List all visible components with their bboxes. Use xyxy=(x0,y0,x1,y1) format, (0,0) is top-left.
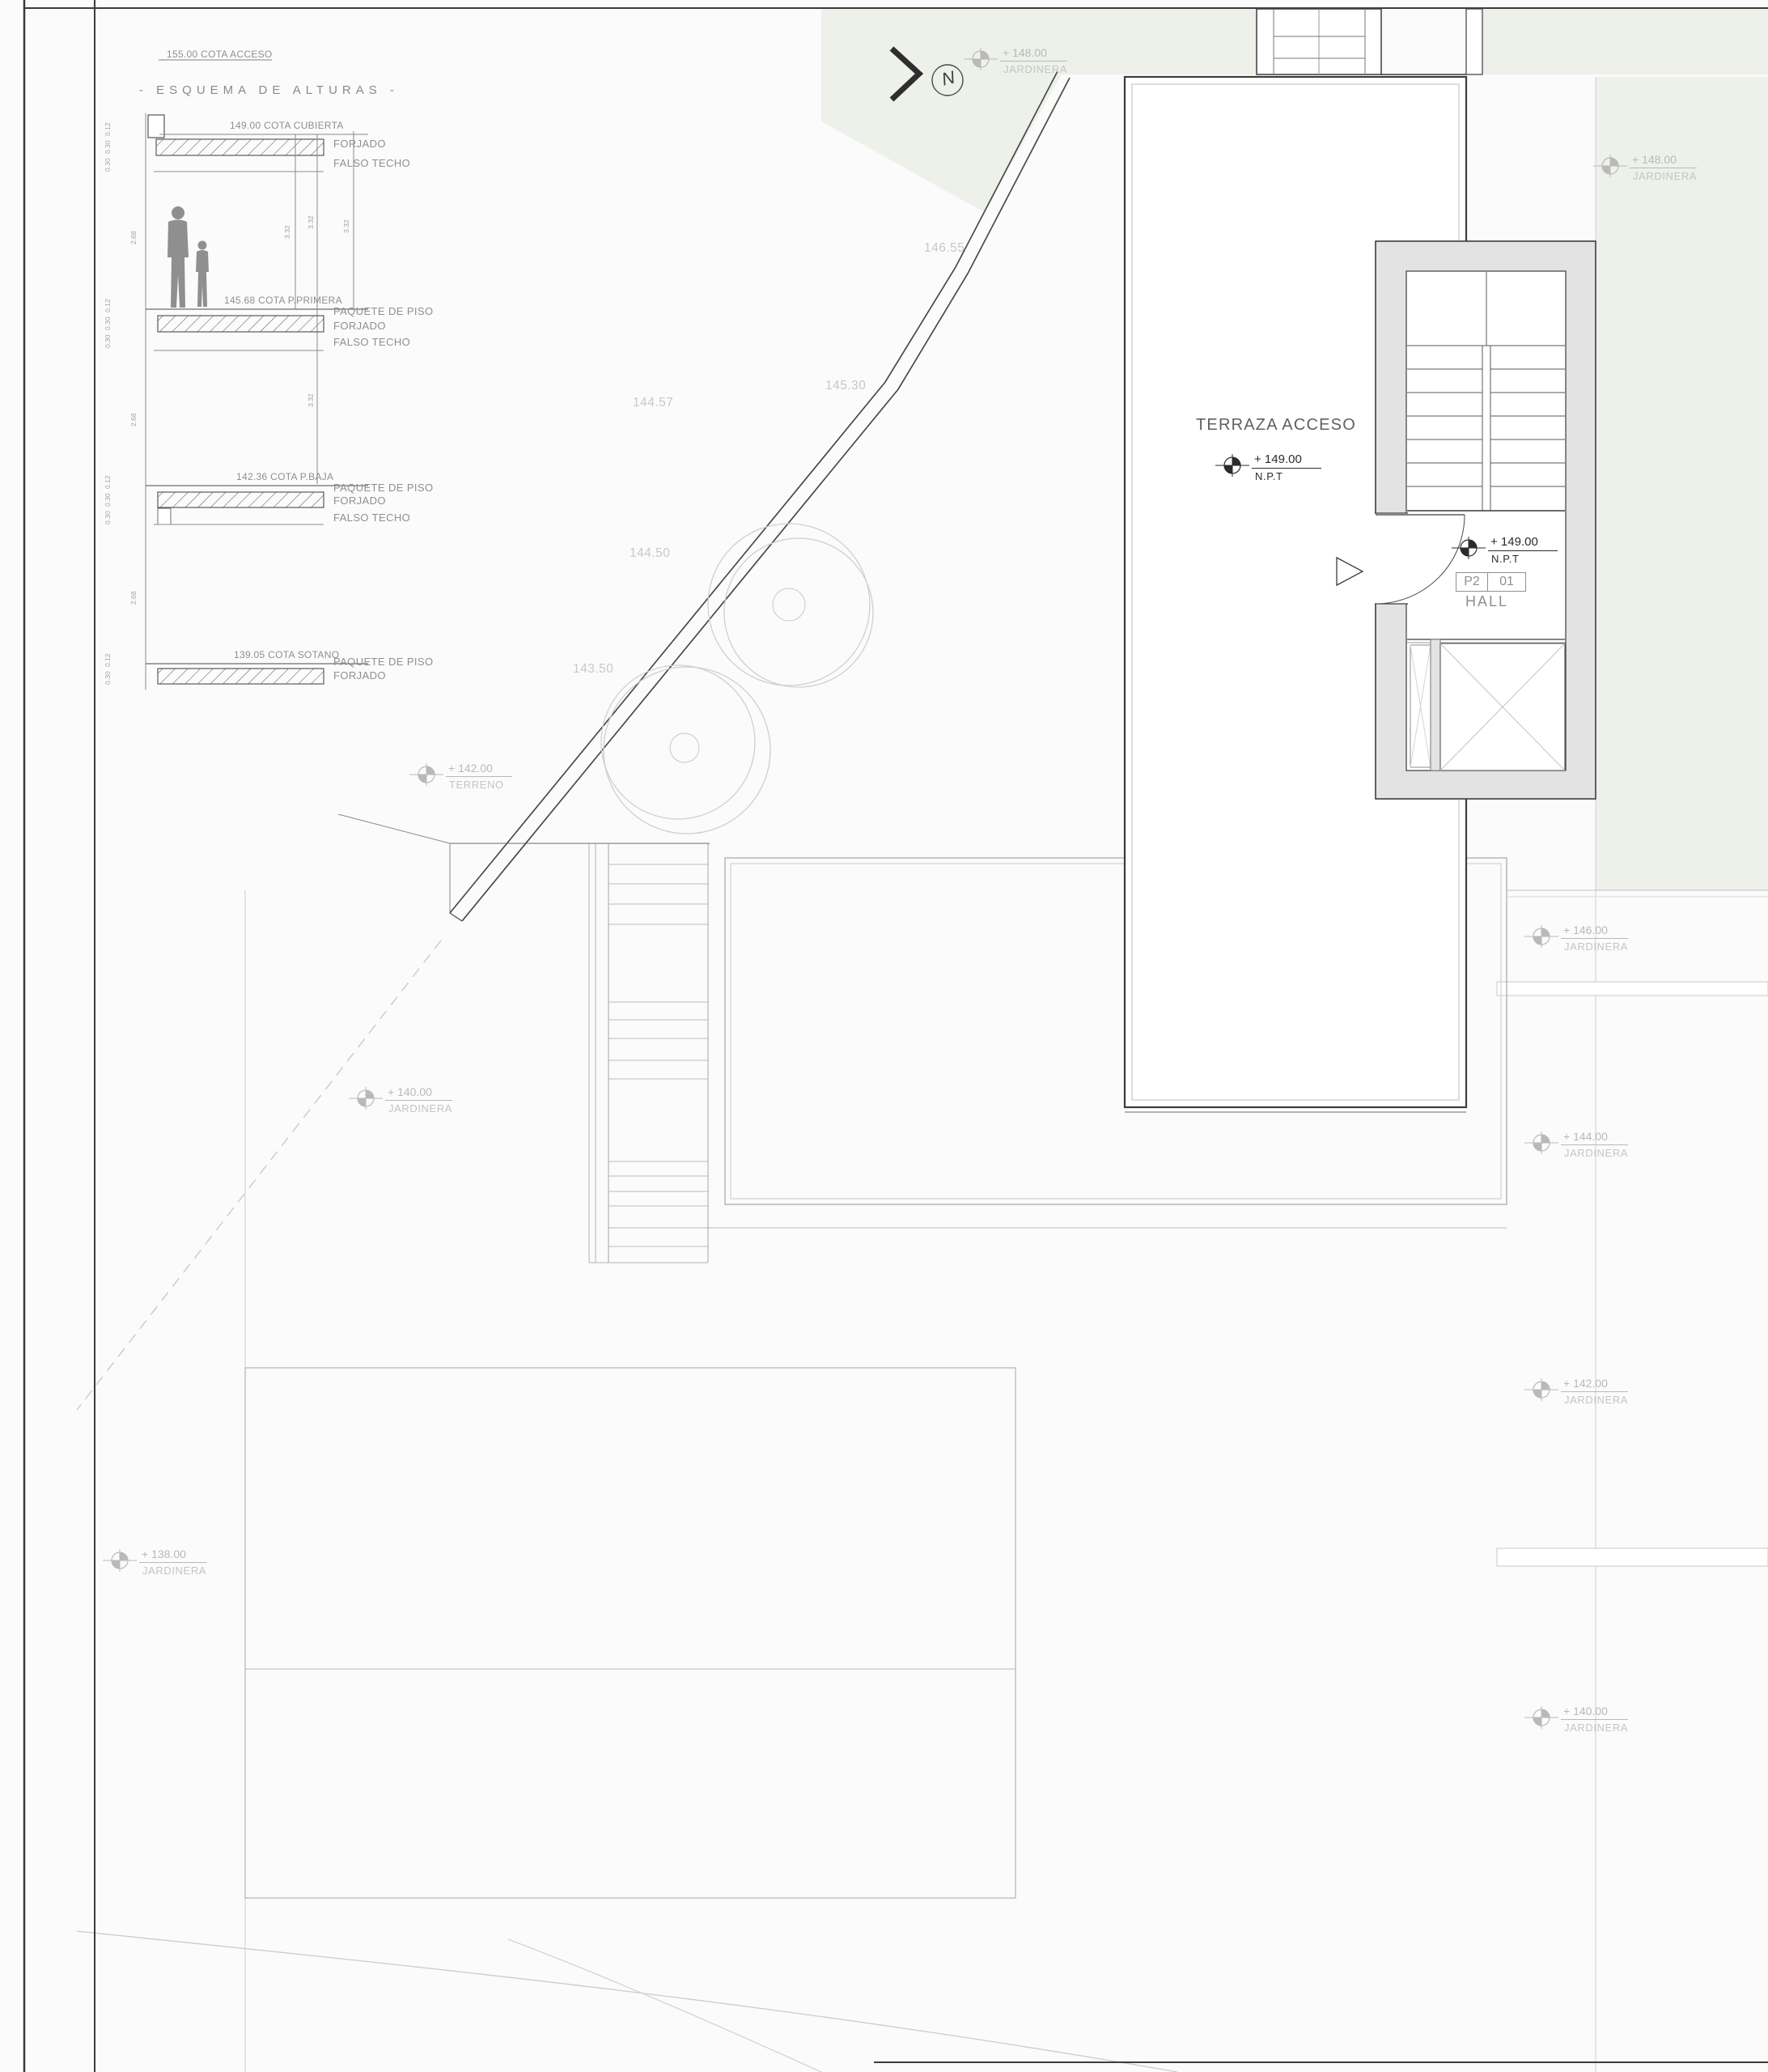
dim-t3-1: 0.30 xyxy=(104,158,112,172)
dim-t1-2: 0.12 xyxy=(104,299,112,312)
npt-value: + 149.00 xyxy=(1488,535,1558,551)
room-tag: P2 01 xyxy=(1456,572,1526,592)
spot-elevation-1: 146.55 xyxy=(924,241,965,256)
room-tag-number: 01 xyxy=(1488,572,1526,592)
marker-value: + 140.00 xyxy=(385,1085,452,1101)
label-forjado-3: FORJADO xyxy=(333,495,386,507)
slab-primera xyxy=(158,316,324,332)
marker-jardinera-140-left: + 140.00 JARDINERA xyxy=(348,1086,452,1115)
dim-story-3: 2.68 xyxy=(129,591,138,605)
terraza-acceso-label: TERRAZA ACCESO xyxy=(1196,416,1356,435)
dim-floor-3: 3.32 xyxy=(342,219,350,233)
marker-sub: JARDINERA xyxy=(1000,62,1067,75)
marker-sub: JARDINERA xyxy=(1561,939,1628,953)
site-stair-treads xyxy=(608,864,708,1246)
level-benchmark-icon xyxy=(1451,536,1486,560)
marker-value: + 148.00 xyxy=(1630,153,1697,168)
tree-2-trunk xyxy=(670,733,699,762)
dim-t3-2: 0.30 xyxy=(104,334,112,348)
marker-terreno-142: + 142.00 TERRENO xyxy=(409,762,512,791)
level-benchmark-icon xyxy=(1592,154,1628,178)
people-silhouettes xyxy=(167,206,209,308)
level-benchmark-icon xyxy=(1524,1378,1559,1402)
dim-floor-2: 3.32 xyxy=(307,215,315,229)
tree-1-trunk xyxy=(773,588,805,621)
npt-marker-terraza: + 149.00 N.P.T xyxy=(1215,453,1321,482)
stair-core xyxy=(1337,241,1596,799)
label-paquete-3: PAQUETE DE PISO xyxy=(333,482,434,494)
room-name-hall: HALL xyxy=(1465,593,1508,610)
garden-area-topright xyxy=(1482,9,1768,74)
npt-sub: N.P.T xyxy=(1252,469,1321,482)
npt-marker-hall: + 149.00 N.P.T xyxy=(1451,536,1558,565)
marker-value: + 138.00 xyxy=(139,1548,206,1563)
spot-elevation-2: 145.30 xyxy=(825,379,866,393)
marker-sub: TERRENO xyxy=(446,777,512,791)
marker-sub: JARDINERA xyxy=(139,1563,206,1577)
dim-story-1: 2.68 xyxy=(129,231,138,244)
tree-2 xyxy=(601,665,770,834)
dim-story-2: 2.68 xyxy=(129,413,138,427)
level-benchmark-icon xyxy=(409,762,444,787)
dim-floor-1: 3.32 xyxy=(283,225,291,239)
cota-baja: 142.36 COTA P.BAJA xyxy=(236,471,333,482)
marker-value: + 146.00 xyxy=(1561,923,1628,939)
slab-baja xyxy=(158,492,324,507)
npt-value: + 149.00 xyxy=(1252,452,1321,469)
spot-elevation-3: 144.57 xyxy=(633,396,673,410)
tree-1 xyxy=(708,524,873,687)
marker-jardinera-146: + 146.00 JARDINERA xyxy=(1524,924,1628,953)
level-benchmark-icon xyxy=(1215,453,1250,478)
level-benchmark-icon xyxy=(102,1548,138,1573)
dim-t2-1: 0.30 xyxy=(104,140,112,154)
marker-value: + 144.00 xyxy=(1561,1130,1628,1145)
schema-title: - ESQUEMA DE ALTURAS - xyxy=(139,83,399,97)
planter-wall-upper xyxy=(1497,982,1768,996)
cota-primera: 145.68 COTA P.PRIMERA xyxy=(224,295,342,306)
npt-sub: N.P.T xyxy=(1488,551,1558,565)
marker-value: + 142.00 xyxy=(1561,1377,1628,1392)
cota-cubierta: 149.00 COTA CUBIERTA xyxy=(230,120,344,131)
slab-baja-curb xyxy=(158,508,171,524)
dim-t2-4: 0.30 xyxy=(104,671,112,685)
dashed-terrain-line xyxy=(77,940,441,1410)
marker-sub: JARDINERA xyxy=(1561,1720,1628,1734)
slab-sotano xyxy=(158,669,324,684)
marker-value: + 148.00 xyxy=(1000,46,1067,62)
label-falsotecho-3: FALSO TECHO xyxy=(333,512,410,524)
dim-floor-4: 3.32 xyxy=(307,393,315,407)
dim-t1-1: 0.12 xyxy=(104,122,112,136)
label-paquete-4: PAQUETE DE PISO xyxy=(333,656,434,668)
terrain-contours xyxy=(77,1931,1177,2072)
level-benchmark-icon xyxy=(963,47,998,71)
spot-elevation-4: 144.50 xyxy=(630,546,670,561)
dim-t1-3: 0.12 xyxy=(104,475,112,489)
level-benchmark-icon xyxy=(1524,924,1559,949)
heights-schema xyxy=(146,60,368,690)
level-benchmark-icon xyxy=(1524,1131,1559,1155)
marker-jardinera-138: + 138.00 JARDINERA xyxy=(102,1548,206,1577)
marker-sub: JARDINERA xyxy=(1630,168,1697,182)
marker-jardinera-144: + 144.00 JARDINERA xyxy=(1524,1131,1628,1159)
marker-jardinera-142-right: + 142.00 JARDINERA xyxy=(1524,1378,1628,1406)
marker-value: + 142.00 xyxy=(446,762,512,777)
architectural-sheet: { "esquema": { "cota_acceso": "155.00 CO… xyxy=(0,0,1768,2072)
spot-elevation-5: 143.50 xyxy=(573,662,613,677)
cota-sotano: 139.05 COTA SOTANO xyxy=(234,649,339,660)
marker-jardinera-140-right: + 140.00 JARDINERA xyxy=(1524,1705,1628,1734)
marker-sub: JARDINERA xyxy=(1561,1392,1628,1406)
dim-t1-4: 0.12 xyxy=(104,653,112,667)
planter-walls xyxy=(1497,982,1768,1566)
marker-value: + 140.00 xyxy=(1561,1705,1628,1720)
plan-linework xyxy=(0,0,1768,2072)
cota-acceso-label: 155.00 COTA ACCESO xyxy=(167,49,273,60)
label-forjado-2: FORJADO xyxy=(333,320,386,332)
label-forjado-4: FORJADO xyxy=(333,669,386,681)
site-stair-strip xyxy=(589,843,708,1263)
dim-t2-2: 0.30 xyxy=(104,316,112,330)
marker-sub: JARDINERA xyxy=(385,1101,452,1115)
lower-roof-outline xyxy=(245,1368,1015,1898)
label-paquete-2: PAQUETE DE PISO xyxy=(333,305,434,317)
dim-t2-3: 0.30 xyxy=(104,493,112,507)
marker-jardinera-148-top: + 148.00 JARDINERA xyxy=(963,47,1067,75)
garden-area-right xyxy=(1596,77,1768,890)
top-wall-bar xyxy=(1466,9,1482,74)
slab-cubierta xyxy=(156,139,324,155)
top-steps-structure xyxy=(1257,9,1482,74)
label-falsotecho-2: FALSO TECHO xyxy=(333,336,410,348)
level-benchmark-icon xyxy=(348,1086,384,1110)
planter-wall-lower xyxy=(1497,1548,1768,1566)
marker-sub: JARDINERA xyxy=(1561,1145,1628,1159)
level-benchmark-icon xyxy=(1524,1705,1559,1730)
room-tag-code: P2 xyxy=(1456,572,1488,592)
dim-t3-3: 0.30 xyxy=(104,511,112,524)
label-forjado-1: FORJADO xyxy=(333,138,386,150)
label-falsotecho-1: FALSO TECHO xyxy=(333,157,410,169)
marker-jardinera-148-right: + 148.00 JARDINERA xyxy=(1592,154,1697,182)
elevator-shaft xyxy=(1407,639,1565,771)
